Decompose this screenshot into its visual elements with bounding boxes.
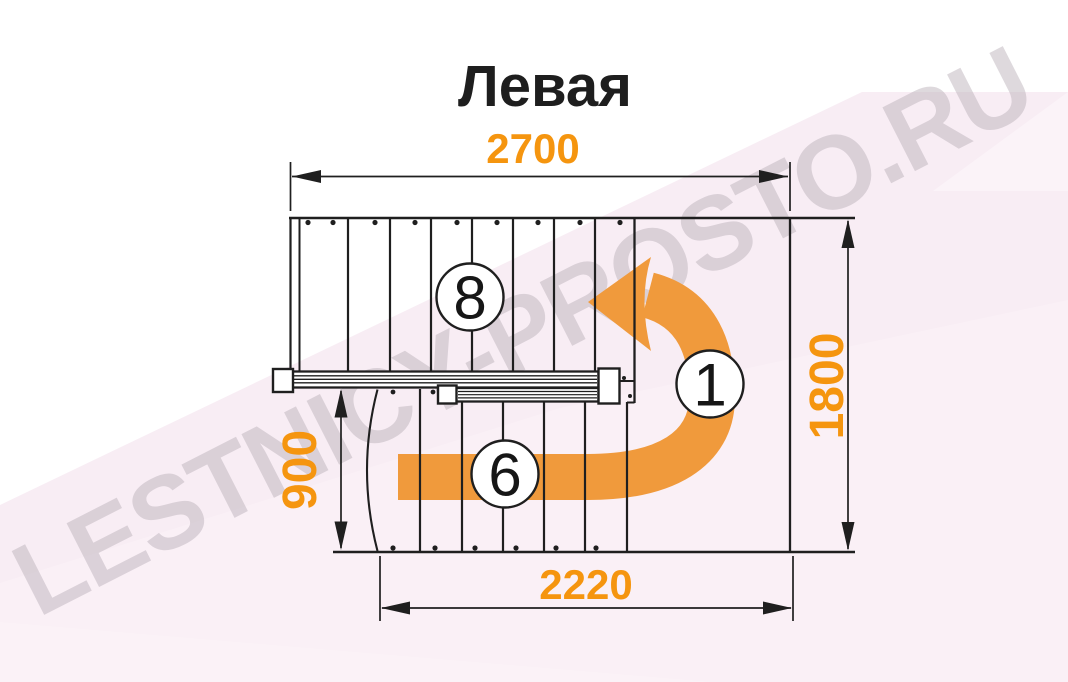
page-title: Левая: [458, 54, 632, 119]
beam-end-cap: [599, 369, 620, 404]
diagram-canvas: LESTNICY-PROSTO.RU: [0, 0, 1068, 682]
dimension-label-left: 900: [274, 430, 327, 510]
tread-dot: [431, 390, 436, 395]
tread-dot: [622, 376, 626, 380]
tread-dot: [472, 545, 477, 550]
dimension-label-right: 1800: [801, 333, 854, 440]
step-number-upper: 8: [453, 265, 486, 332]
tread-dot: [494, 220, 499, 225]
tread-dot: [577, 220, 582, 225]
tread-dot: [305, 220, 310, 225]
step-number-landing: 1: [693, 352, 726, 419]
tread-dot: [391, 390, 396, 395]
beam-end-cap: [438, 386, 457, 404]
tread-dot: [412, 220, 417, 225]
tread-dot: [390, 545, 395, 550]
tread-dot: [593, 545, 598, 550]
dimension-arrowhead: [292, 170, 321, 183]
beam-end-cap: [273, 369, 293, 392]
tread-dot: [535, 220, 540, 225]
tread-dot: [513, 545, 518, 550]
dimension-label-top: 2700: [486, 125, 579, 172]
tread-dot: [553, 545, 558, 550]
tread-dot: [628, 394, 632, 398]
dimension-label-bottom: 2220: [539, 561, 632, 608]
tread-dot: [454, 220, 459, 225]
step-number-lower: 6: [488, 442, 521, 509]
tread-dot: [432, 545, 437, 550]
tread-dot: [617, 220, 622, 225]
stair-plan-diagram: LESTNICY-PROSTO.RU: [0, 0, 1068, 682]
tread-dot: [372, 220, 377, 225]
tread-dot: [330, 220, 335, 225]
